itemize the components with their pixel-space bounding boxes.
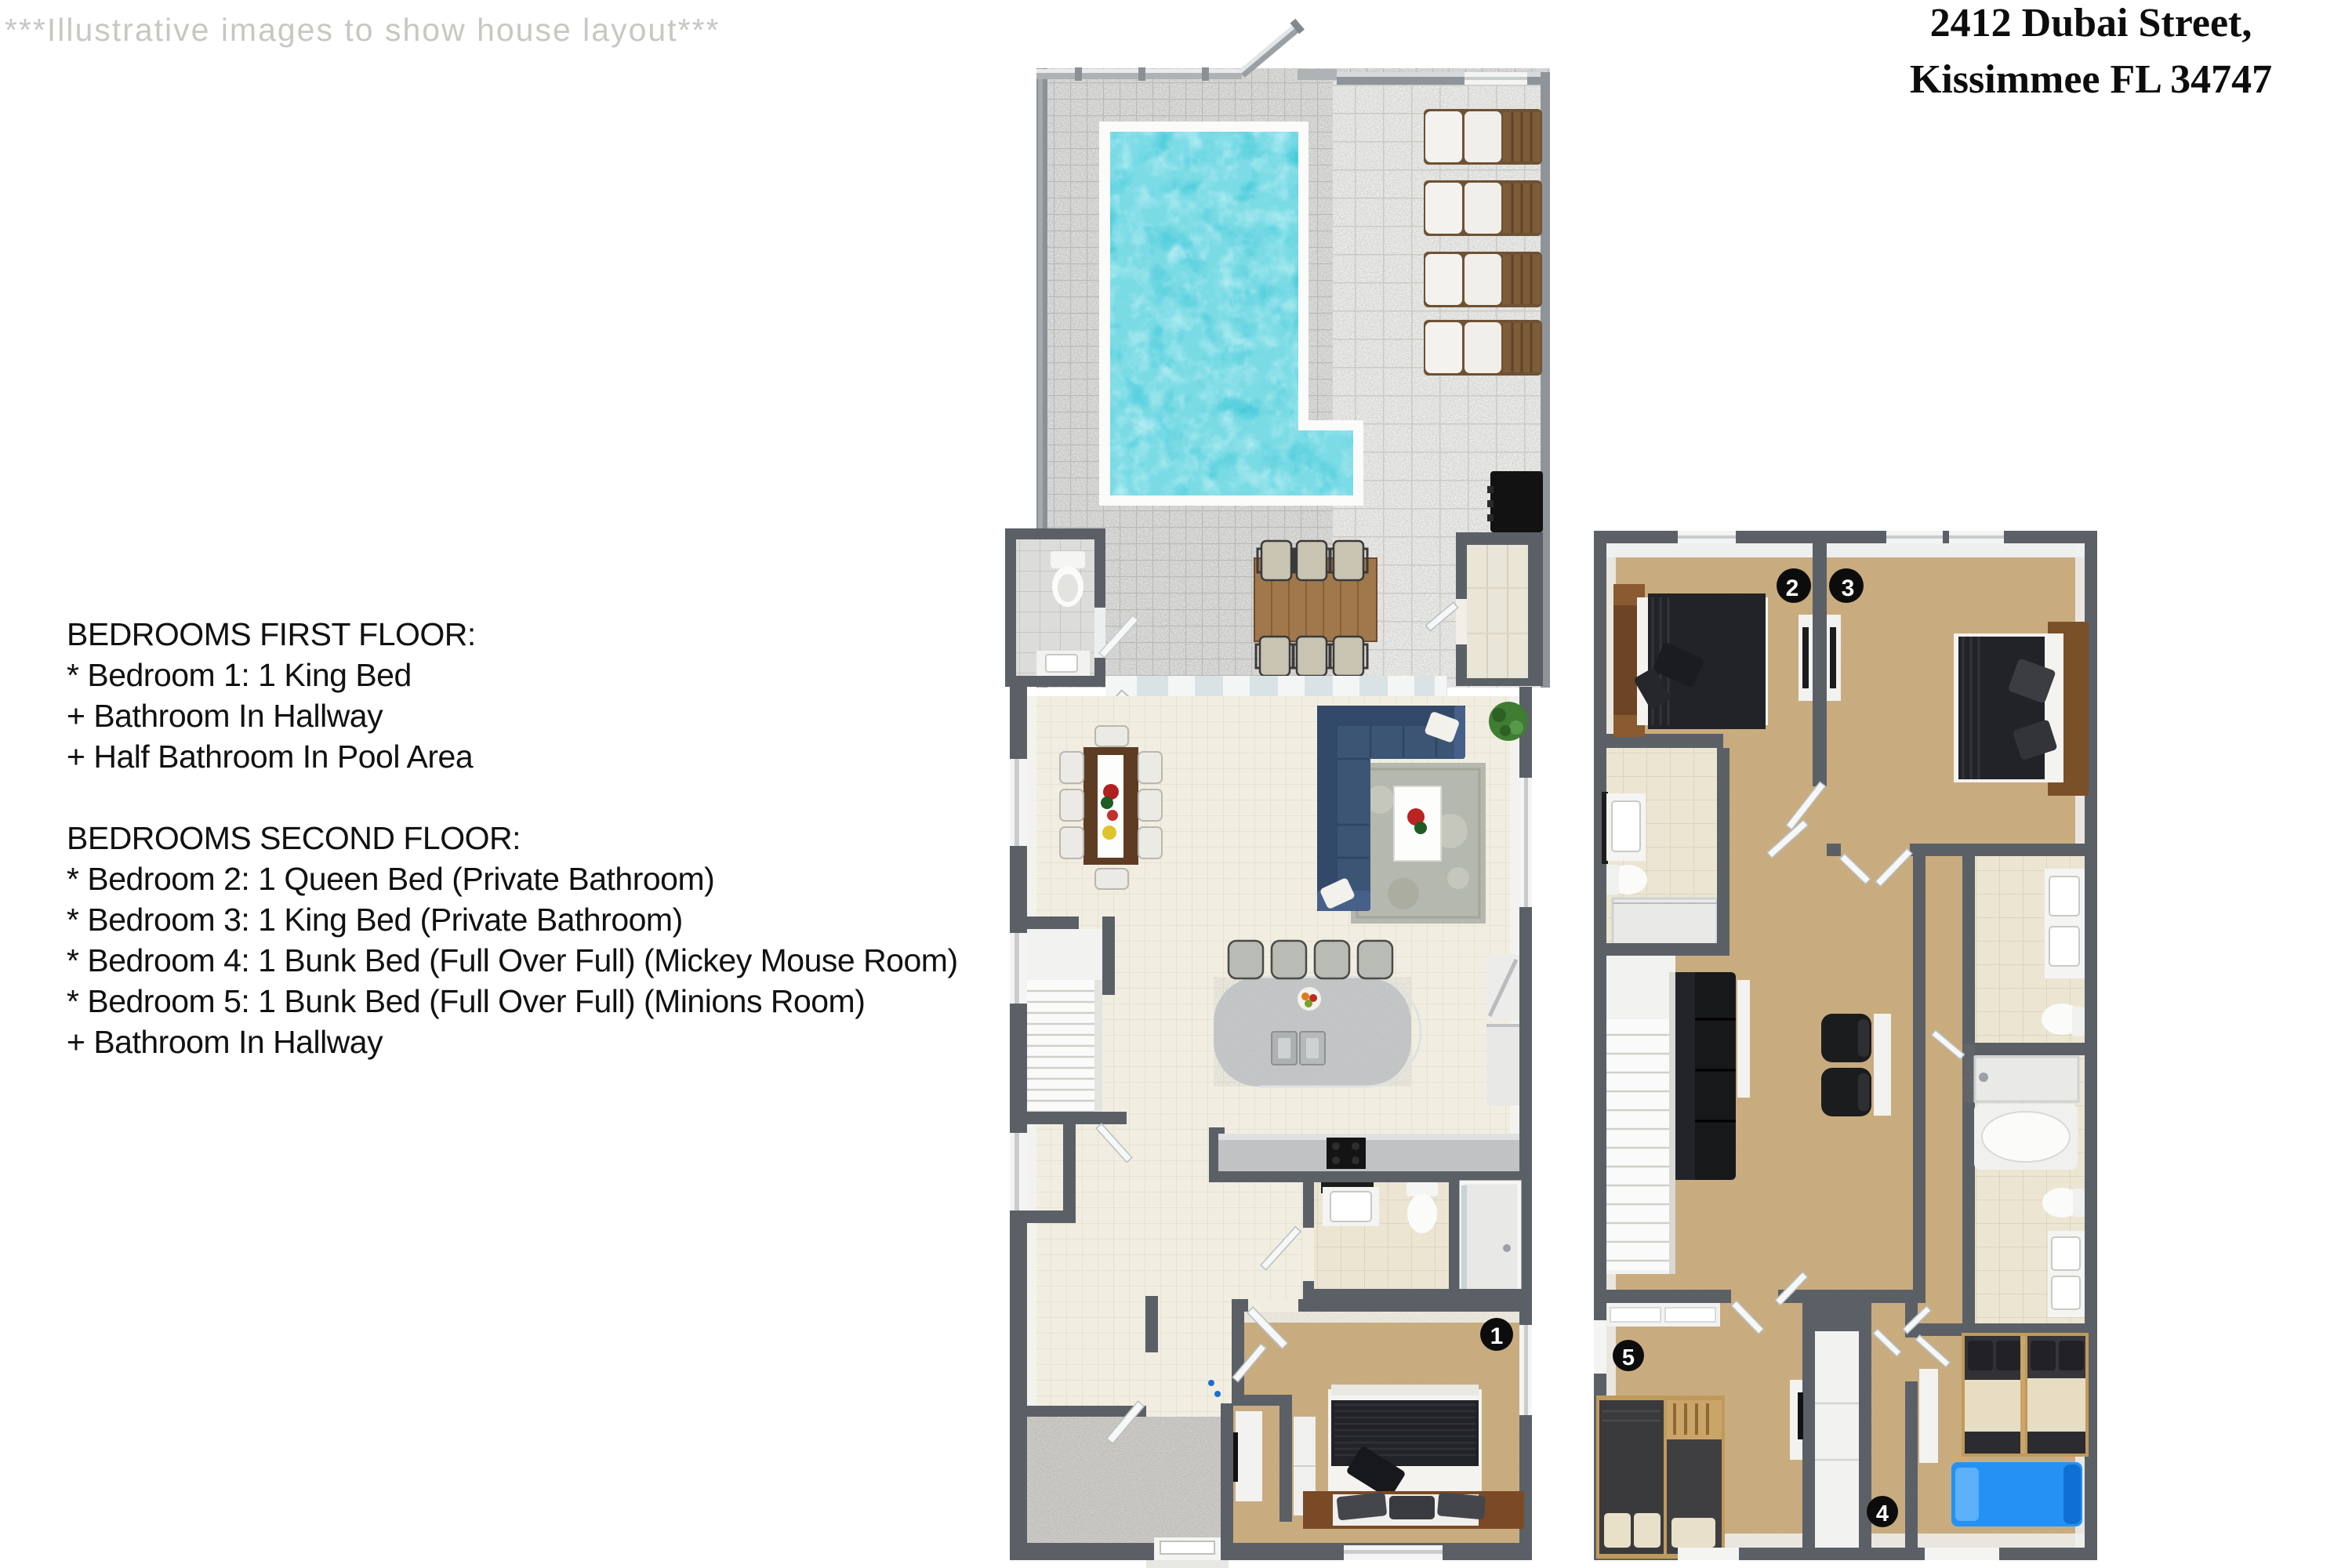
svg-text:***Illustrative images to show: ***Illustrative images to show house lay… — [5, 12, 720, 48]
svg-text:* Bedroom 3: 1 King Bed (Priva: * Bedroom 3: 1 King Bed (Private Bathroo… — [67, 902, 683, 938]
svg-text:* Bedroom 4: 1 Bunk Bed (Full: * Bedroom 4: 1 Bunk Bed (Full Over Full)… — [67, 942, 958, 978]
svg-text:2: 2 — [1786, 575, 1799, 601]
svg-text:+ Half Bathroom In Pool Area: + Half Bathroom In Pool Area — [67, 739, 474, 775]
svg-text:* Bedroom 2: 1 Queen Bed (Priv: * Bedroom 2: 1 Queen Bed (Private Bathro… — [67, 861, 714, 897]
svg-text:Kissimmee FL 34747: Kissimmee FL 34747 — [1910, 57, 2272, 102]
svg-text:2412 Dubai Street,: 2412 Dubai Street, — [1930, 1, 2252, 45]
svg-text:* Bedroom 5: 1 Bunk Bed (Full: * Bedroom 5: 1 Bunk Bed (Full Over Full)… — [67, 983, 865, 1019]
svg-text:+ Bathroom In Hallway: + Bathroom In Hallway — [67, 698, 383, 734]
svg-text:BEDROOMS SECOND FLOOR:: BEDROOMS SECOND FLOOR: — [67, 820, 521, 856]
svg-text:BEDROOMS FIRST FLOOR:: BEDROOMS FIRST FLOOR: — [67, 616, 476, 652]
svg-text:+ Bathroom In Hallway: + Bathroom In Hallway — [67, 1024, 383, 1060]
svg-text:1: 1 — [1490, 1323, 1504, 1349]
svg-text:* Bedroom 1: 1 King Bed: * Bedroom 1: 1 King Bed — [67, 657, 412, 693]
svg-text:3: 3 — [1842, 575, 1855, 601]
svg-text:5: 5 — [1622, 1345, 1635, 1370]
svg-text:4: 4 — [1876, 1501, 1889, 1526]
